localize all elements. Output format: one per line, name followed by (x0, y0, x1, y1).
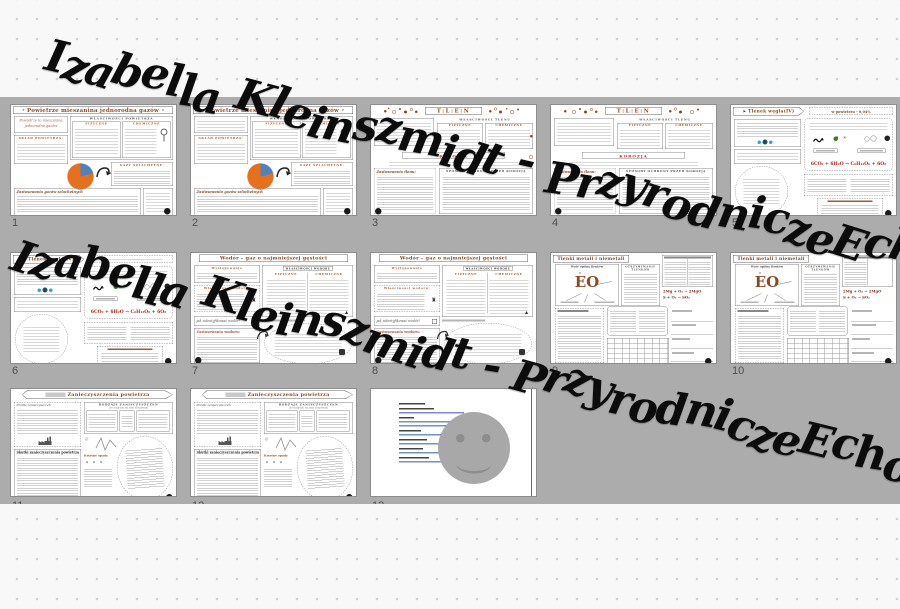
zrodla-header: Źródła zanieczyszczeń: (197, 404, 232, 408)
rocket-icon: ▲ (525, 310, 528, 315)
label-bar (741, 302, 759, 304)
text-lines (377, 175, 433, 212)
text-lines (737, 122, 798, 137)
intro-text: Powietrze to mieszanina jednorodna gazów (17, 118, 66, 129)
dot-decoration (584, 111, 587, 114)
molecule-atom-icon (769, 141, 773, 145)
otrzymywanie-header: OTRZYMYWANIE TLENKÓW (802, 266, 840, 272)
properties-header: WŁAŚCIWOŚCI TLENU (617, 118, 713, 122)
checklist-box (734, 119, 801, 147)
rodzaje-box: RODZAJE ZANIECZYSZCZEŃ (ze względu na st… (84, 402, 173, 434)
intro-box: Powietrze to mieszanina jednorodna gazów (14, 116, 68, 133)
title-banner: Tlenki metali i niemetali (733, 255, 809, 263)
thumbnail-slide-1[interactable]: ☀ Powietrze mieszanina jednorodna gazów … (10, 104, 177, 216)
fizyczne-header: FIZYCZNE (446, 273, 487, 277)
title-banner: ☀ Powietrze mieszanina jednorodna gazów … (13, 107, 173, 115)
worksheet-title: Tlenki metali i niemetali (737, 256, 804, 261)
worksheet-title: Wodór – gaz o najmniejszej gęstości (400, 256, 507, 262)
text-lines (114, 169, 170, 184)
brand-logo (555, 208, 562, 215)
otrzymywanie-header: OTRZYMYWANIE TLENKÓW (622, 266, 660, 272)
text-lines (639, 309, 665, 334)
pie-chart-air-composition (247, 163, 274, 190)
gazy-box: GAZY SZLACHETNE: (291, 162, 353, 186)
skutki-header: Skutki zanieczyszczenia powietrza (17, 451, 80, 455)
percent-banner: w powietrzu - 0,04% (809, 108, 893, 115)
brand-logo (705, 358, 712, 364)
text-lines (620, 128, 660, 147)
dot-decoration (564, 110, 567, 113)
sun-icon: ☀ (843, 136, 847, 141)
chemiczne-column: CHEMICZNE (665, 123, 713, 149)
text-lines (17, 456, 78, 497)
thumbnail-slide-12[interactable]: Zanieczyszczenia powietrza Źródła zaniec… (190, 388, 357, 497)
prevention-ellipse (295, 434, 355, 497)
rain-arrows-icon: ▾▾▾ (266, 460, 287, 465)
cieкle-column (120, 411, 135, 432)
text-lines (17, 142, 65, 162)
produkty-label-box (858, 149, 886, 154)
label-bar (561, 302, 579, 304)
dot-decoration (674, 108, 677, 111)
text-lines (819, 309, 845, 334)
properties-header: WŁAŚCIWOŚCI TLENU (437, 118, 533, 122)
notes-circle (15, 314, 68, 364)
kwasne-header: Kwaśne opady (84, 454, 108, 458)
rodzaje-box: RODZAJE ZANIECZYSZCZEŃ (ze względu na st… (264, 402, 353, 434)
worksheet-title: Zanieczyszczenia powietrza (67, 392, 149, 398)
radiating-lines (736, 265, 800, 307)
text-lines (17, 195, 138, 215)
blank-lines (264, 467, 292, 487)
fizyczne-header: FIZYCZNE (266, 273, 307, 277)
blank-lines (17, 299, 78, 310)
molecule-atom-icon (38, 289, 42, 293)
dot-decoration (697, 109, 699, 111)
pie-chart-air-composition (67, 163, 94, 190)
caption-bar (442, 320, 485, 322)
sun-icon: ☼ (264, 436, 269, 443)
title-banner: Zanieczyszczenia powietrza (22, 391, 173, 400)
header-bar (108, 349, 153, 351)
equation: S + O₂ → SO₂ (843, 295, 870, 300)
skutki-box: Skutki zanieczyszczenia powietrza (14, 449, 81, 497)
blank-lines (738, 314, 781, 361)
text-lines (737, 151, 798, 162)
slide-number: 3 (372, 217, 378, 229)
zastosowania-header: Zastosowania wodoru: (197, 330, 241, 335)
label-chip (225, 393, 245, 398)
two-column-box (84, 322, 173, 344)
photosynthesis-box: ☀ 6CO₂ + 6H₂O → C₆H₁₂O₆ + 6O₂ (804, 118, 893, 171)
thumbnail-slide-9[interactable]: Tlenki metali i niemetali Wzór ogólny tl… (550, 252, 717, 364)
caption-bar (399, 457, 429, 459)
wystepowanie-header: Występowanie (375, 267, 440, 271)
smiley-eye (456, 434, 465, 443)
factory-icon (218, 437, 233, 446)
brand-logo (375, 208, 382, 215)
otrzymywanie-box: OTRZYMYWANIE TLENKÓW (621, 264, 660, 306)
brand-logo (885, 210, 892, 216)
worksheet-title: Tlenki metali i niemetali (557, 256, 624, 261)
zastosowania-box: Zastosowania tlenu: (374, 168, 436, 214)
chemiczne-header: CHEMICZNE (309, 273, 350, 277)
photosynthesis-equation: 6CO₂ + 6H₂O → C₆H₁₂O₆ + 6O₂ (805, 162, 893, 167)
slide-number: 2 (192, 217, 198, 229)
text-lines (810, 121, 888, 130)
blank-lines (305, 446, 345, 490)
label-bar (775, 302, 795, 304)
wzor-ogolny-box: Wzór ogólny tlenków II EO (555, 264, 619, 306)
title-banner: ➤ Tlenek węgla(IV) (733, 107, 804, 116)
dot-decoration (499, 111, 502, 114)
caption-bar (399, 430, 421, 432)
process-box (734, 149, 801, 164)
title-banner: Wodór – gaz o najmniejszej gęstości (199, 255, 348, 263)
header-bar (828, 201, 873, 203)
brand-logo (165, 358, 172, 364)
blank-lines (557, 121, 611, 144)
title-banner: Tlenki metali i niemetali (553, 255, 629, 263)
label-bar (672, 310, 692, 312)
properties-header: WŁAŚCIWOŚCI POWIETRZA (71, 117, 173, 121)
label-chip (45, 393, 65, 398)
brand-logo (885, 358, 892, 364)
wystepowanie-box: Występowanie (374, 265, 440, 283)
worksheet-powietrze: ☀ Powietrze mieszanina jednorodna gazów … (11, 105, 176, 216)
zastosowania-header: Zastosowania tlenu: (377, 170, 416, 175)
zrodla-box: Źródła zanieczyszczeń: (194, 402, 261, 447)
worksheet-title: Tlenek węgla(IV) (748, 109, 794, 114)
dot-decoration (579, 108, 581, 110)
zrodla-box: Źródła zanieczyszczeń: (14, 402, 81, 447)
rodzaje-subtitle: (ze względu na stan skupienia) (265, 407, 353, 410)
chemiczne-column: CHEMICZNE (122, 122, 171, 159)
text-lines (17, 409, 78, 435)
thumbnail-slide-11[interactable]: Zanieczyszczenia powietrza Źródła zaniec… (10, 388, 177, 497)
text-lines (197, 195, 318, 215)
slide-number: 4 (552, 217, 558, 229)
glucose-circle-icon (865, 137, 870, 142)
header-bar (558, 310, 589, 312)
worksheet-title: Wodór – gaz o najmniejszej gęstości (220, 256, 327, 262)
label-bar (852, 310, 872, 312)
dot-decoration (595, 111, 598, 114)
fizyczne-column: FIZYCZNE (617, 123, 663, 149)
column-divider (688, 257, 689, 286)
text-lines (808, 177, 847, 194)
text-lines (88, 325, 127, 342)
fizyczne-header: FIZYCZNE (618, 124, 663, 128)
brand-logo (344, 208, 351, 215)
black-dot-decoration (885, 136, 891, 142)
stale-column (87, 411, 118, 432)
leaf-icon (834, 137, 839, 142)
label-bar (672, 338, 690, 340)
dot-decoration (679, 111, 682, 114)
links-page (371, 389, 536, 497)
coal-scribble-icon (813, 137, 824, 144)
title-banner: T:L:E:N (605, 107, 662, 115)
title-banner: T:L:E:N (425, 107, 482, 115)
text-lines (131, 325, 170, 342)
molecule-atom-icon (758, 141, 762, 145)
label-bar (852, 324, 876, 326)
text-lines (668, 128, 710, 147)
slide-number: 12 (192, 500, 204, 504)
zastosowania-box: Zastosowania gazów szlachetnych (14, 188, 141, 216)
right-rows (671, 308, 713, 363)
checkbox-icon (432, 319, 437, 324)
dot-decoration (494, 108, 497, 111)
title-banner: Zanieczyszczenia powietrza (202, 391, 353, 400)
properties-header: WŁAŚCIWOŚCI WODORU (284, 268, 333, 271)
sklad-box: SKŁAD POWIETRZA: (194, 135, 248, 164)
chemiczne-header: CHEMICZNE (123, 122, 171, 126)
gazowe-column (317, 411, 350, 432)
text-lines (197, 456, 258, 497)
equation: 2Mg + O₂ → 2MgO (843, 289, 881, 294)
text-lines (84, 467, 112, 487)
text-lines (665, 260, 687, 285)
brand-logo (346, 494, 353, 497)
slide-number: 7 (192, 365, 198, 377)
sklad-header: SKŁAD POWIETRZA: (15, 137, 68, 141)
molecule-atom-icon (49, 289, 53, 293)
gazy-header: GAZY SZLACHETNE: (112, 164, 173, 168)
sklad-header: SKŁAD POWIETRZA: (195, 137, 248, 141)
zrodla-header: Źródła zanieczyszczeń: (17, 404, 52, 408)
magnifier-icon (159, 128, 169, 143)
text-lines (447, 278, 486, 314)
fizyczne-header: FIZYCZNE (73, 122, 121, 126)
page: { "watermarks": [ {"text": "Izabella Kle… (0, 0, 900, 609)
label-bar (672, 352, 694, 354)
text-lines (75, 127, 118, 157)
dot-decoration (669, 110, 672, 113)
equation: 2Mg + O₂ → 2MgO (663, 289, 701, 294)
glucose-circle-icon (871, 136, 877, 142)
rain-arrows-icon: ▾▾▾ (86, 460, 107, 465)
properties-header-box: WŁAŚCIWOŚCI WODORU (283, 266, 333, 271)
oxide-names-table (662, 255, 713, 287)
dot-decoration (572, 110, 576, 114)
properties-box: WŁAŚCIWOŚCI WODORU FIZYCZNE CHEMICZNE (442, 265, 533, 317)
oxide-table (607, 338, 669, 364)
zastosowania-header: Zastosowania gazów szlachetnych (197, 190, 263, 195)
gazy-header: GAZY SZLACHETNE: (292, 164, 353, 168)
worksheet-zanieczyszczenia: Zanieczyszczenia powietrza Źródła zaniec… (191, 389, 356, 497)
properties-box: WŁAŚCIWOŚCI POWIETRZA FIZYCZNE CHEMICZNE (70, 116, 173, 160)
column-divider (488, 273, 489, 314)
text-lines (851, 177, 890, 194)
label-bar (852, 338, 870, 340)
gazy-box: GAZY SZLACHETNE: (111, 162, 173, 186)
otrzymywanie-box: OTRZYMYWANIE TLENKÓW (801, 264, 840, 306)
fizyczne-column: FIZYCZNE (72, 122, 121, 159)
text-lines (490, 278, 529, 314)
dot-decoration (517, 109, 519, 111)
link-bar (399, 412, 464, 414)
worksheet-title: T:L:E:N (617, 108, 651, 115)
dot-decoration (690, 110, 694, 114)
right-rows (851, 308, 893, 363)
wzor-ogolny-box: Wzór ogólny tlenków II EO (735, 264, 799, 306)
element-info-box (554, 118, 614, 146)
substraty-label-box (814, 149, 838, 154)
zastosowania-header: Zastosowania gazów szlachetnych (17, 190, 83, 195)
skutki-header: Skutki zanieczyszczenia powietrza (197, 451, 260, 455)
oxide-table (787, 338, 849, 364)
left-notes-box (735, 308, 784, 363)
text-lines (294, 169, 350, 184)
worksheet-zanieczyszczenia: Zanieczyszczenia powietrza Źródła zaniec… (11, 389, 176, 497)
smiley-face (438, 412, 510, 484)
text-lines (102, 352, 159, 362)
properties-header-box: WŁAŚCIWOŚCI WODORU (463, 266, 513, 271)
sklad-box: SKŁAD POWIETRZA: (14, 135, 68, 164)
factory-icon (38, 437, 53, 446)
zigzag-drawing (275, 436, 298, 451)
label-bar (852, 352, 874, 354)
worksheet-title: T:L:E:N (437, 108, 471, 115)
text-lines (125, 127, 157, 157)
prevention-ellipse (115, 434, 175, 497)
zigzag-drawing (95, 436, 118, 451)
brand-logo (195, 357, 202, 364)
gazowe-column (137, 411, 170, 432)
dot-decoration (510, 110, 514, 114)
text-lines (689, 260, 711, 285)
dot-decoration (489, 110, 492, 113)
check-lines (377, 292, 425, 310)
worksheet-title: Powietrze mieszanina jednorodna gazów (27, 107, 159, 114)
label-bar (595, 302, 615, 304)
castle-icon: ♜ (431, 297, 436, 304)
limewater-box (97, 346, 163, 364)
smiley-mouth (456, 453, 492, 474)
thumbnail-slide-13[interactable] (370, 388, 537, 497)
arrow-glyph: ➤ (743, 109, 746, 114)
dot-decoration (590, 108, 593, 111)
sun-icon: ☀ (22, 109, 25, 113)
swirl-arrow-icon (95, 165, 112, 178)
worksheet-tlenki: Tlenki metali i niemetali Wzór ogólny tl… (551, 253, 716, 364)
rodzaje-subtitle: (ze względu na stan skupienia) (85, 407, 173, 410)
dot-decoration (506, 108, 508, 110)
chemiczne-header: CHEMICZNE (486, 124, 533, 128)
caption-bar (399, 439, 427, 441)
ciekle-column (300, 411, 315, 432)
caption-bar (399, 417, 414, 419)
brand-logo (166, 494, 173, 497)
blank-lines (24, 325, 60, 354)
text-lines (125, 446, 165, 490)
radiating-lines (556, 265, 620, 307)
skutki-box: Skutki zanieczyszczenia powietrza (194, 449, 261, 497)
chemiczne-header: CHEMICZNE (489, 273, 530, 277)
blank-lines (197, 409, 258, 435)
label-bar (672, 324, 696, 326)
properties-header: WŁAŚCIWOŚCI WODORU (464, 268, 513, 271)
slide-number: 13 (372, 500, 384, 504)
process-box (14, 297, 81, 312)
title-banner: Wodór – gaz o najmniejszej gęstości (379, 255, 528, 263)
sun-icon: ☀ (161, 109, 164, 113)
blank-lines (804, 273, 837, 304)
text-lines (610, 309, 636, 334)
swirl-arrow-icon (275, 165, 292, 178)
text-lines (377, 272, 437, 282)
slide-number: 1 (12, 217, 18, 229)
caption-bar (399, 448, 423, 450)
wlasciwosci-box: Właściwości wodoru: ♜ (374, 285, 440, 312)
slide-number: 6 (12, 365, 18, 377)
stale-column (267, 411, 298, 432)
zastosowania-box: Zastosowania gazów szlachetnych (194, 188, 321, 216)
speech-bubble-box (607, 306, 668, 336)
brand-logo (164, 208, 171, 215)
smiley-eye (482, 434, 491, 443)
kwasne-header: Kwaśne opady (264, 454, 288, 458)
percent-label: w powietrzu - 0,04% (810, 110, 893, 115)
worksheet-title: Zanieczyszczenia powietrza (247, 392, 329, 398)
text-lines (790, 309, 816, 334)
caption-bar (399, 403, 425, 405)
caption-bar (399, 408, 434, 410)
text-lines (624, 273, 657, 304)
wlasciwosci-header: Właściwości wodoru: (375, 287, 440, 291)
header-bar (738, 310, 769, 312)
molecule-atom-icon (763, 140, 768, 145)
equation: S + O₂ → SO₂ (663, 295, 690, 300)
two-column-box (804, 174, 893, 196)
slide-number: 11 (12, 500, 23, 504)
chemiczne-header: CHEMICZNE (666, 124, 713, 128)
text-lines (197, 142, 245, 162)
slide-number: 10 (732, 365, 744, 377)
sun-icon: ☼ (84, 436, 89, 443)
speech-bubble-box (787, 306, 848, 336)
